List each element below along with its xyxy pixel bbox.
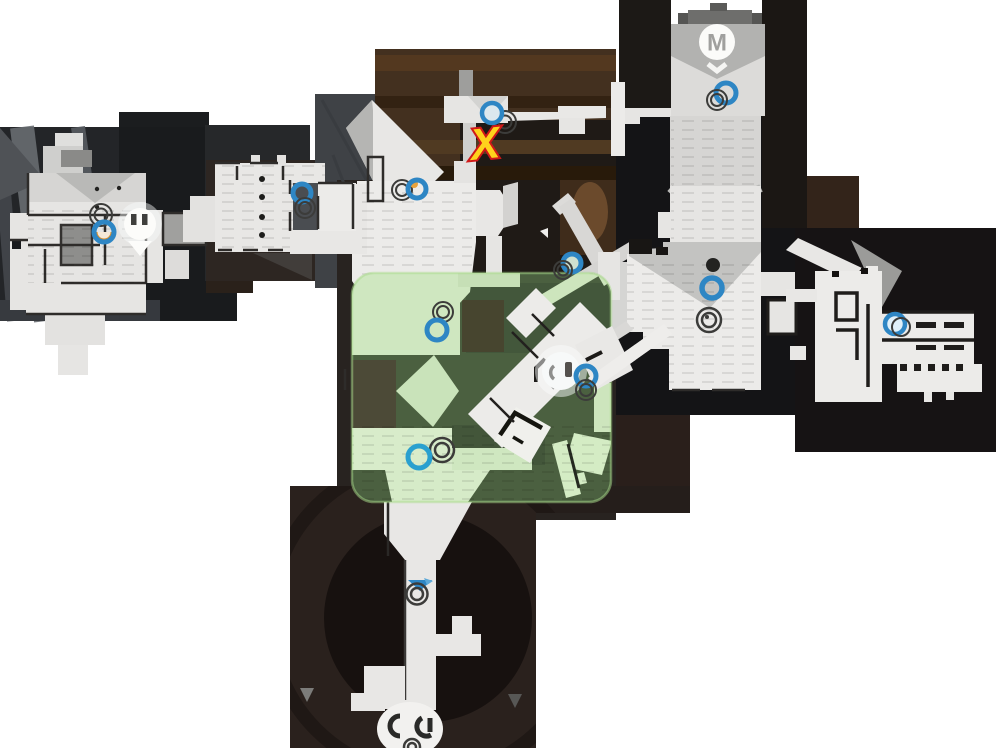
svg-text:M: M (707, 30, 727, 57)
